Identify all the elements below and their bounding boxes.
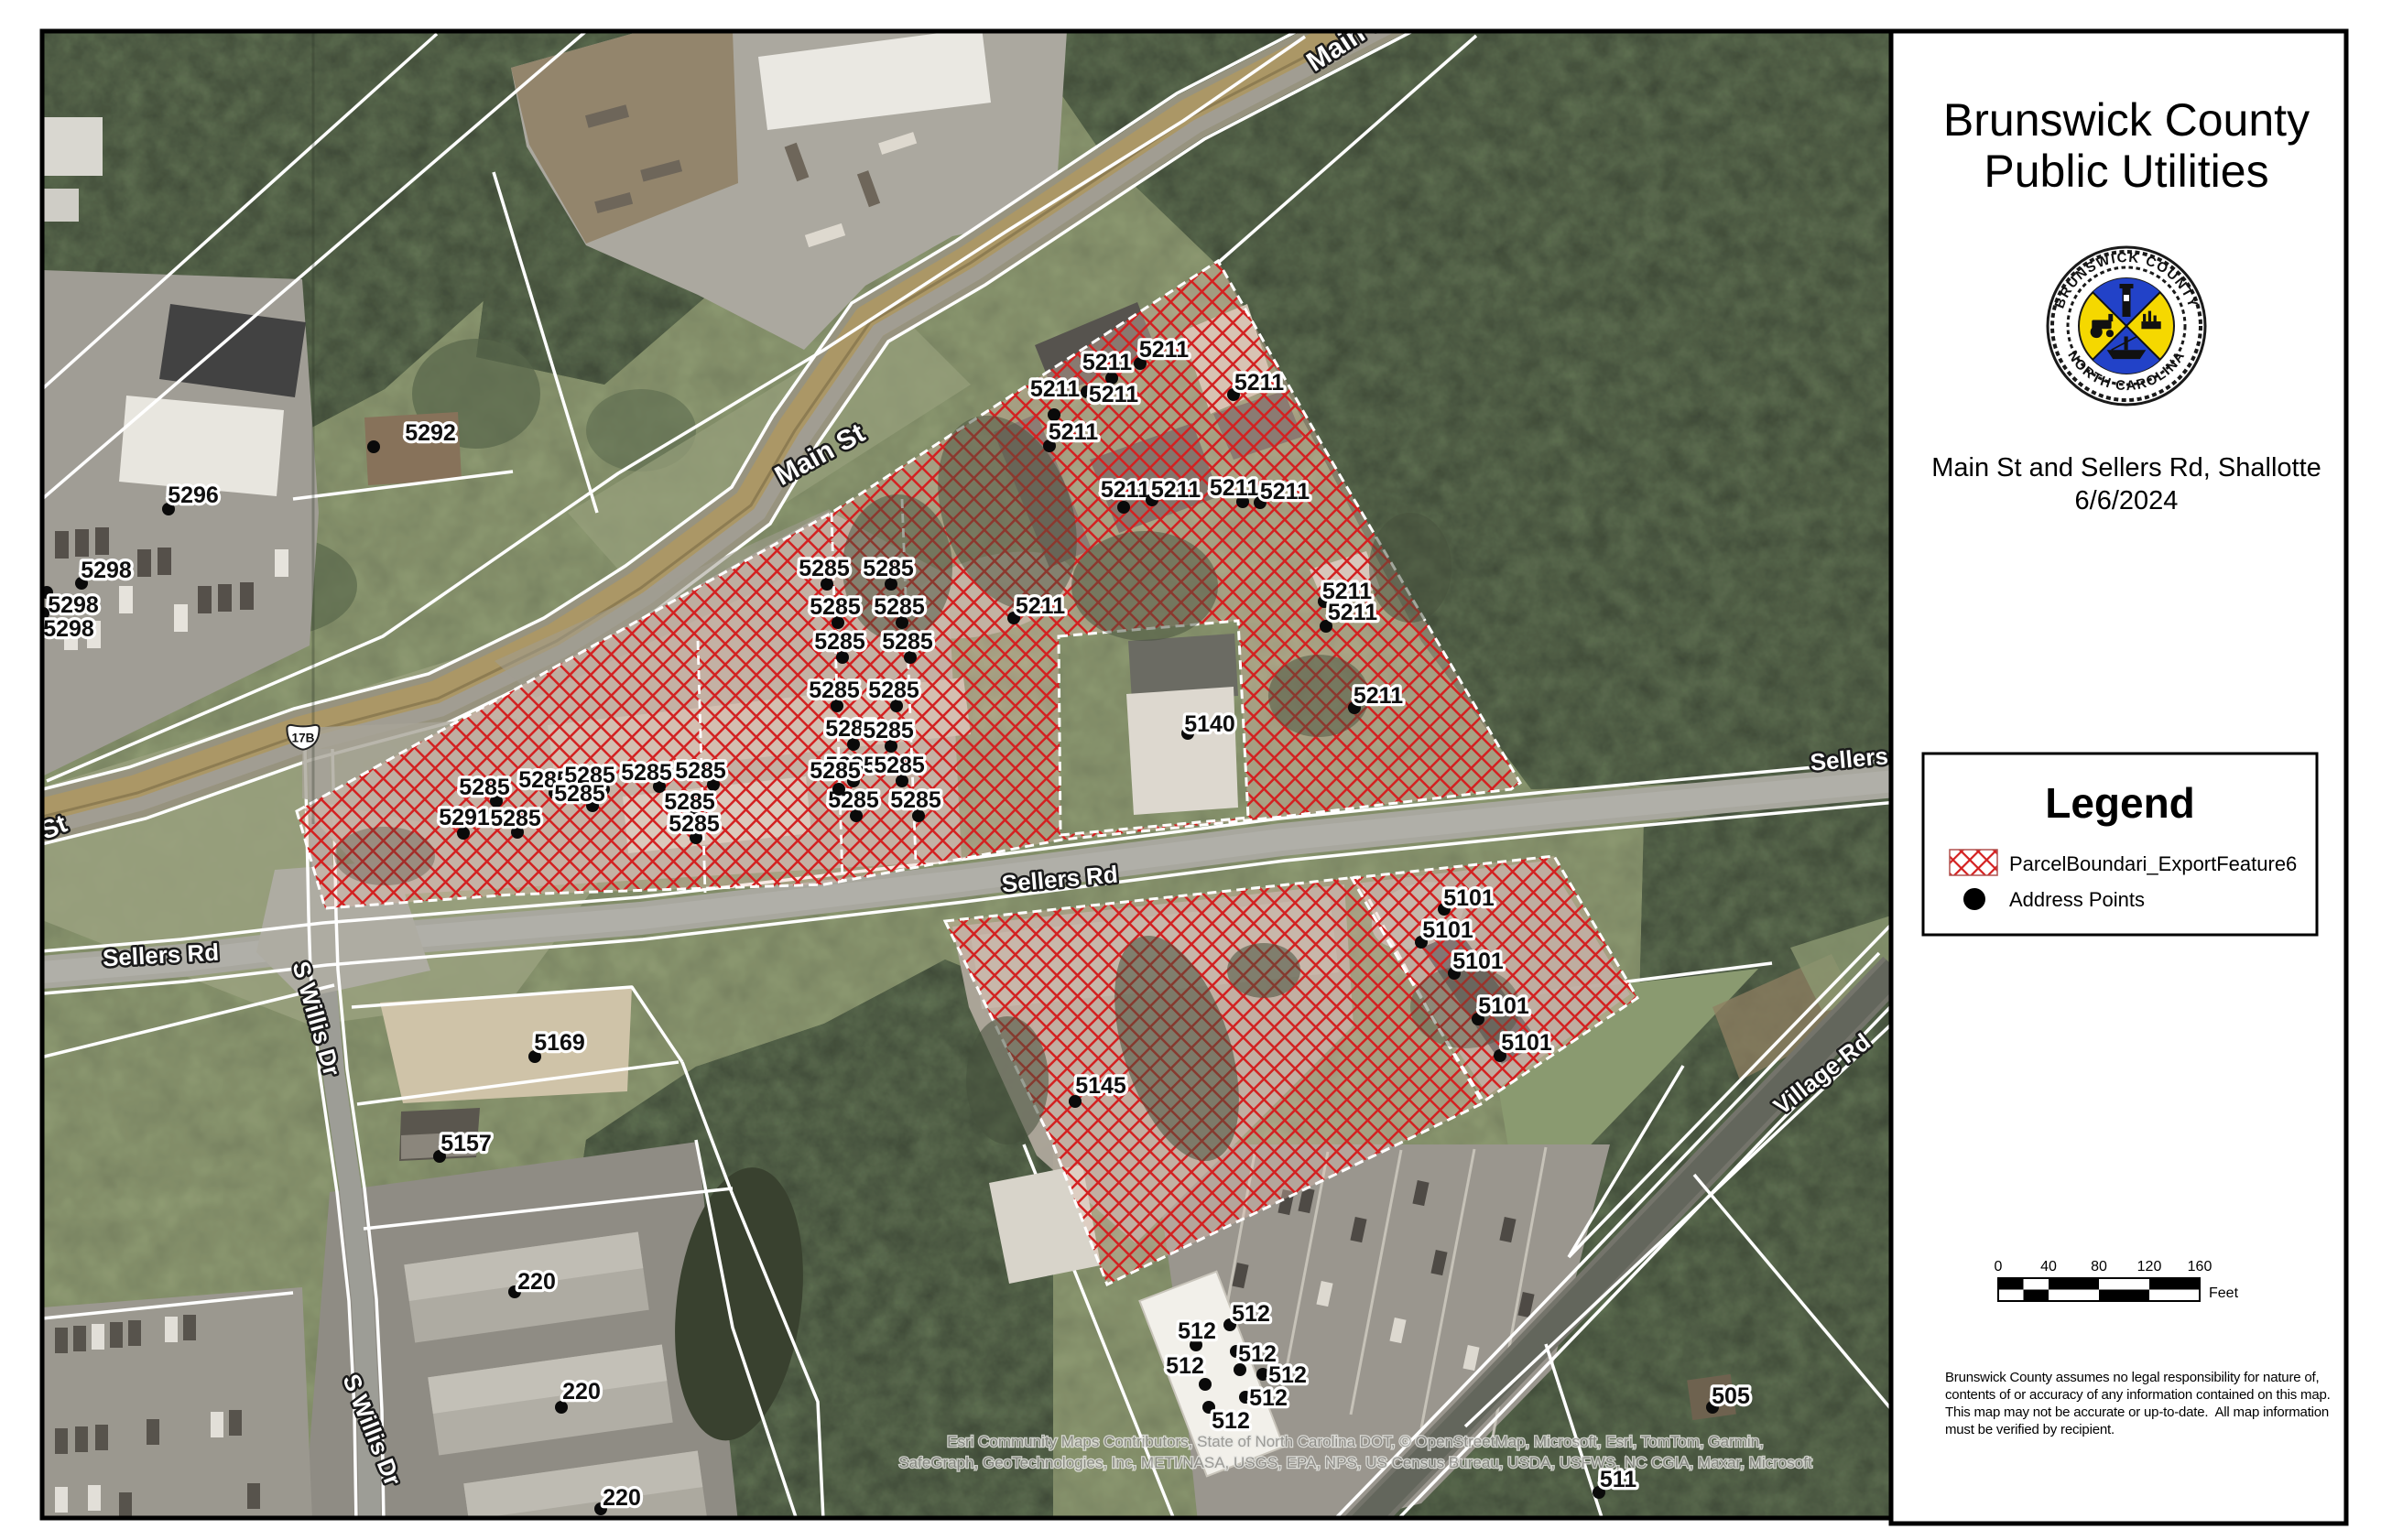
svg-text:5285: 5285 — [675, 758, 726, 784]
svg-text:505: 505 — [1712, 1383, 1750, 1409]
svg-text:220: 220 — [603, 1485, 641, 1511]
svg-text:5169: 5169 — [534, 1030, 585, 1056]
svg-text:5291: 5291 — [439, 805, 490, 830]
svg-text:This map may not be accurate o: This map may not be accurate or up-to-da… — [1945, 1404, 2329, 1420]
svg-text:5101: 5101 — [1478, 993, 1529, 1019]
svg-text:Legend: Legend — [2045, 779, 2195, 827]
svg-text:0: 0 — [1995, 1259, 2003, 1274]
svg-text:SafeGraph, GeoTechnologies, In: SafeGraph, GeoTechnologies, Inc, METI/NA… — [898, 1454, 1812, 1471]
svg-text:5285: 5285 — [554, 781, 605, 807]
svg-text:Brunswick County assumes no le: Brunswick County assumes no legal respon… — [1945, 1370, 2319, 1385]
svg-text:160: 160 — [2188, 1259, 2212, 1274]
svg-text:5211: 5211 — [1139, 337, 1189, 363]
svg-text:512: 512 — [1249, 1385, 1288, 1411]
svg-text:Main St and Sellers Rd, Shallo: Main St and Sellers Rd, Shallotte — [1931, 453, 2321, 483]
svg-text:5211: 5211 — [1049, 419, 1098, 445]
svg-text:Feet: Feet — [2209, 1285, 2239, 1301]
svg-text:5211: 5211 — [1210, 475, 1259, 501]
svg-text:5211: 5211 — [1082, 350, 1132, 375]
svg-text:5145: 5145 — [1075, 1073, 1126, 1099]
svg-text:5285: 5285 — [810, 594, 861, 620]
svg-text:512: 512 — [1212, 1408, 1250, 1434]
svg-text:Esri Community Maps Contributo: Esri Community Maps Contributors, State … — [947, 1433, 1764, 1450]
svg-text:Brunswick County: Brunswick County — [1943, 94, 2310, 146]
svg-text:5285: 5285 — [882, 629, 933, 655]
svg-text:5285: 5285 — [863, 718, 914, 743]
svg-text:120: 120 — [2137, 1259, 2162, 1274]
svg-text:5211: 5211 — [1089, 382, 1138, 407]
svg-text:5211: 5211 — [1101, 477, 1150, 503]
svg-text:5292: 5292 — [405, 420, 456, 446]
svg-text:5211: 5211 — [1354, 683, 1403, 709]
svg-text:5285: 5285 — [490, 806, 541, 831]
svg-text:5285: 5285 — [814, 629, 865, 655]
svg-text:5285: 5285 — [863, 556, 914, 581]
svg-text:5101: 5101 — [1452, 949, 1504, 974]
svg-text:5298: 5298 — [81, 558, 132, 583]
svg-text:512: 512 — [1232, 1301, 1270, 1327]
svg-text:Public Utilities: Public Utilities — [1984, 146, 2268, 197]
svg-text:5285: 5285 — [621, 760, 672, 786]
svg-text:512: 512 — [1268, 1362, 1307, 1388]
svg-text:5211: 5211 — [1016, 593, 1065, 619]
svg-text:5285: 5285 — [810, 758, 861, 784]
svg-text:Address Points: Address Points — [2009, 888, 2145, 911]
svg-text:5285: 5285 — [459, 775, 510, 800]
svg-text:5211: 5211 — [1328, 600, 1377, 625]
svg-text:5211: 5211 — [1151, 477, 1201, 503]
svg-text:512: 512 — [1178, 1318, 1216, 1344]
svg-text:5285: 5285 — [890, 787, 941, 813]
svg-text:5211: 5211 — [1030, 376, 1080, 402]
svg-text:6/6/2024: 6/6/2024 — [2075, 486, 2179, 515]
svg-text:220: 220 — [562, 1379, 601, 1404]
svg-text:80: 80 — [2091, 1259, 2107, 1274]
svg-text:5285: 5285 — [874, 753, 925, 778]
svg-text:17B: 17B — [292, 732, 315, 745]
svg-text:5157: 5157 — [440, 1131, 492, 1156]
svg-text:5211: 5211 — [1260, 479, 1310, 504]
svg-text:5285: 5285 — [809, 678, 860, 703]
svg-text:contents of or accuracy of any: contents of or accuracy of any informati… — [1945, 1387, 2331, 1403]
svg-text:220: 220 — [517, 1269, 556, 1295]
svg-text:5298: 5298 — [43, 616, 94, 642]
svg-text:5285: 5285 — [669, 811, 720, 837]
svg-text:5285: 5285 — [874, 594, 925, 620]
svg-text:5101: 5101 — [1422, 917, 1473, 943]
svg-text:5211: 5211 — [1234, 370, 1284, 396]
svg-text:5101: 5101 — [1443, 885, 1495, 911]
svg-text:must be verified by recipient.: must be verified by recipient. — [1945, 1422, 2115, 1437]
svg-text:5285: 5285 — [799, 556, 850, 581]
svg-text:5298: 5298 — [48, 592, 99, 618]
svg-text:5140: 5140 — [1184, 711, 1235, 737]
svg-text:5285: 5285 — [868, 678, 919, 703]
svg-text:40: 40 — [2040, 1259, 2057, 1274]
svg-text:5101: 5101 — [1501, 1030, 1552, 1056]
svg-text:5296: 5296 — [168, 483, 219, 508]
svg-text:512: 512 — [1166, 1353, 1204, 1379]
svg-text:ParcelBoundari_ExportFeature6: ParcelBoundari_ExportFeature6 — [2009, 852, 2297, 875]
